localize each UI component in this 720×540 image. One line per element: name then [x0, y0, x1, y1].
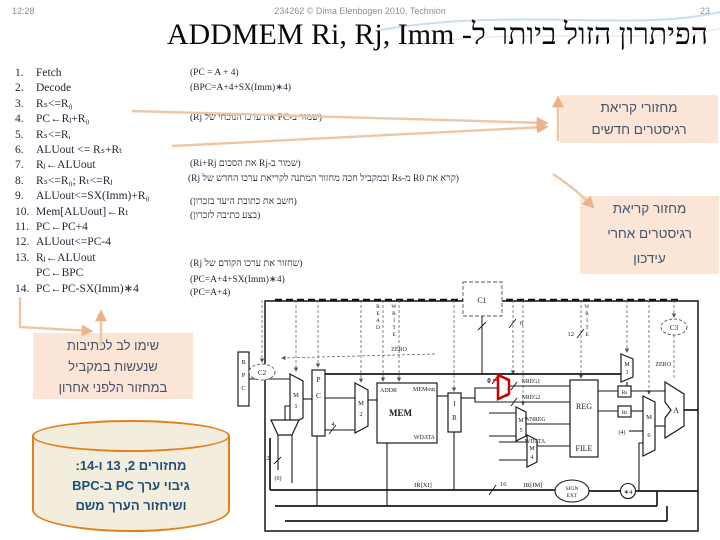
red-zero-const: 0	[487, 377, 491, 385]
slide-title: הפיתרון הזול ביותר ל- ADDMEM Ri, Rj, Imm	[10, 18, 708, 52]
step-row: 11.PC←PC+4	[15, 220, 230, 235]
reg-write-signal: WRITE	[584, 304, 590, 338]
step-annotation: (חשב את כתובת היעד בזכרון)	[190, 197, 297, 207]
step-annotation: (קרא את R0 מ-Rs ובמקביל חכה מחזור המתנה …	[188, 174, 459, 184]
step-row: 3.Rₛ<=R₀	[15, 97, 230, 112]
regfile-file-label: FILE	[576, 444, 593, 453]
mem-label: MEM	[389, 408, 412, 418]
c2-label: C2	[258, 369, 267, 377]
regfile-reg-label: REG	[576, 402, 592, 411]
mux5-num: 5	[520, 428, 523, 434]
ir-xi-field-label: IR[XI]	[414, 482, 432, 489]
step-annotation: (שמור ב-PC את ערכו הנוכחי של Rj)	[190, 113, 322, 123]
c1-label: C1	[477, 296, 486, 305]
mux3-num: 3	[626, 370, 629, 376]
callout-parallel-writes: שימו לב לכתיבות שנעשות במקביל במחזור הלפ…	[33, 333, 193, 399]
step-annotation: (בצע כתיבה לזכרון)	[190, 211, 260, 221]
wnreg-label: WNREG	[524, 417, 545, 423]
c3-label: C3	[670, 324, 679, 332]
bus6-label: 6	[520, 320, 524, 327]
rs-latch-label: Rs	[622, 390, 628, 396]
cylinder-top	[32, 420, 230, 452]
step-annotation: (PC = A + 4)	[190, 68, 239, 78]
rf-wdata-label: WDATA	[525, 439, 546, 445]
step-annotation: (BPC=A+4+SX(Imm)∗4)	[190, 82, 291, 93]
zero-right-label: ZERO	[655, 362, 671, 368]
bus5-label-b: 5	[505, 393, 508, 399]
nreg2-label: NREG2	[522, 395, 541, 401]
step-row: 6.ALUout <= Rₛ+Rₜ	[15, 143, 230, 158]
const0-label: (0)	[275, 475, 282, 482]
step-row: 12.ALUout<=PC-4	[15, 235, 230, 250]
bus16-label: 16	[500, 481, 507, 488]
shift4-label: ∗4	[624, 489, 633, 496]
zero-left-label: ZERO	[391, 347, 407, 353]
datapath-diagram: C1	[237, 278, 717, 536]
mux2-label: M	[358, 400, 364, 407]
step-annotation: (שמור ב-Rj את הסכום Ri+Rj)	[190, 159, 301, 169]
rt-latch-label: Rt	[622, 410, 628, 416]
sign-ext-label-2: EXT	[567, 493, 578, 499]
addr-label: ADDR	[380, 388, 397, 394]
mux4-num: 4	[531, 455, 534, 461]
mem-write-signal: WRITE	[391, 304, 397, 338]
ir-im-field-label: IR[IM]	[524, 482, 543, 489]
bus12-label: 12	[568, 331, 575, 338]
cylinder-note: מחזורים 2, 13 ו-14: גיבוי ערך PC ב-BPC ו…	[32, 420, 230, 533]
mux4-label: M	[529, 446, 535, 452]
bus5-label-a: 5	[505, 377, 508, 383]
mem-wdata-label: WDATA	[414, 435, 436, 441]
const4-label: (4)	[619, 429, 626, 436]
header-course-line: 234262 © Dima Elenbogen 2010, Technion	[0, 6, 720, 16]
mux2-num: 2	[359, 411, 362, 418]
step-annotation: (שחזור את ערכו הקודם של Rj)	[190, 259, 303, 269]
cylinder-text: מחזורים 2, 13 ו-14: גיבוי ערך PC ב-BPC ו…	[32, 456, 230, 516]
nreg1-label: NREG1	[522, 379, 541, 385]
callout-new-register-reads: מחזורי קריאת רגיסטרים חדשים	[560, 95, 718, 143]
mux3-label: M	[624, 362, 630, 368]
memout-label: MEMout	[413, 387, 435, 393]
alu-label: A	[673, 406, 679, 415]
step-row: 5.Rₛ<=Rᵢ	[15, 128, 230, 143]
mux6-label: M	[646, 414, 652, 421]
slide: { "header": { "time": "12:28", "course":…	[0, 0, 720, 540]
bus2-label: 2	[266, 455, 269, 462]
step-annotation: (PC=A+4)	[190, 288, 230, 298]
mux1-label: M	[293, 392, 299, 399]
header-page-number: 23	[700, 6, 710, 16]
mux1-num: 1	[294, 403, 297, 410]
sign-ext-label-1: SIGN	[566, 486, 579, 492]
callout-read-after-update: מחזור קריאת רגיסטרים אחרי עידכון	[580, 196, 719, 274]
mem-read-signal: READ	[376, 304, 380, 331]
